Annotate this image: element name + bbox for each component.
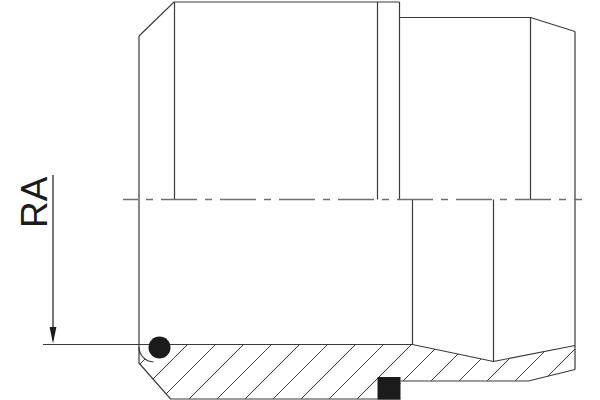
dimension-arrowhead [50,327,57,344]
hex-body-outline [139,2,400,36]
retaining-ring-section-square [378,377,401,400]
dimension-label: RA [14,176,55,228]
section-hatch-area [139,345,576,400]
oring-section-dot [149,337,171,359]
technical-drawing-canvas: RA [0,0,600,400]
right-body-top-edge [400,18,576,32]
fitting-section-drawing: RA [0,0,600,400]
